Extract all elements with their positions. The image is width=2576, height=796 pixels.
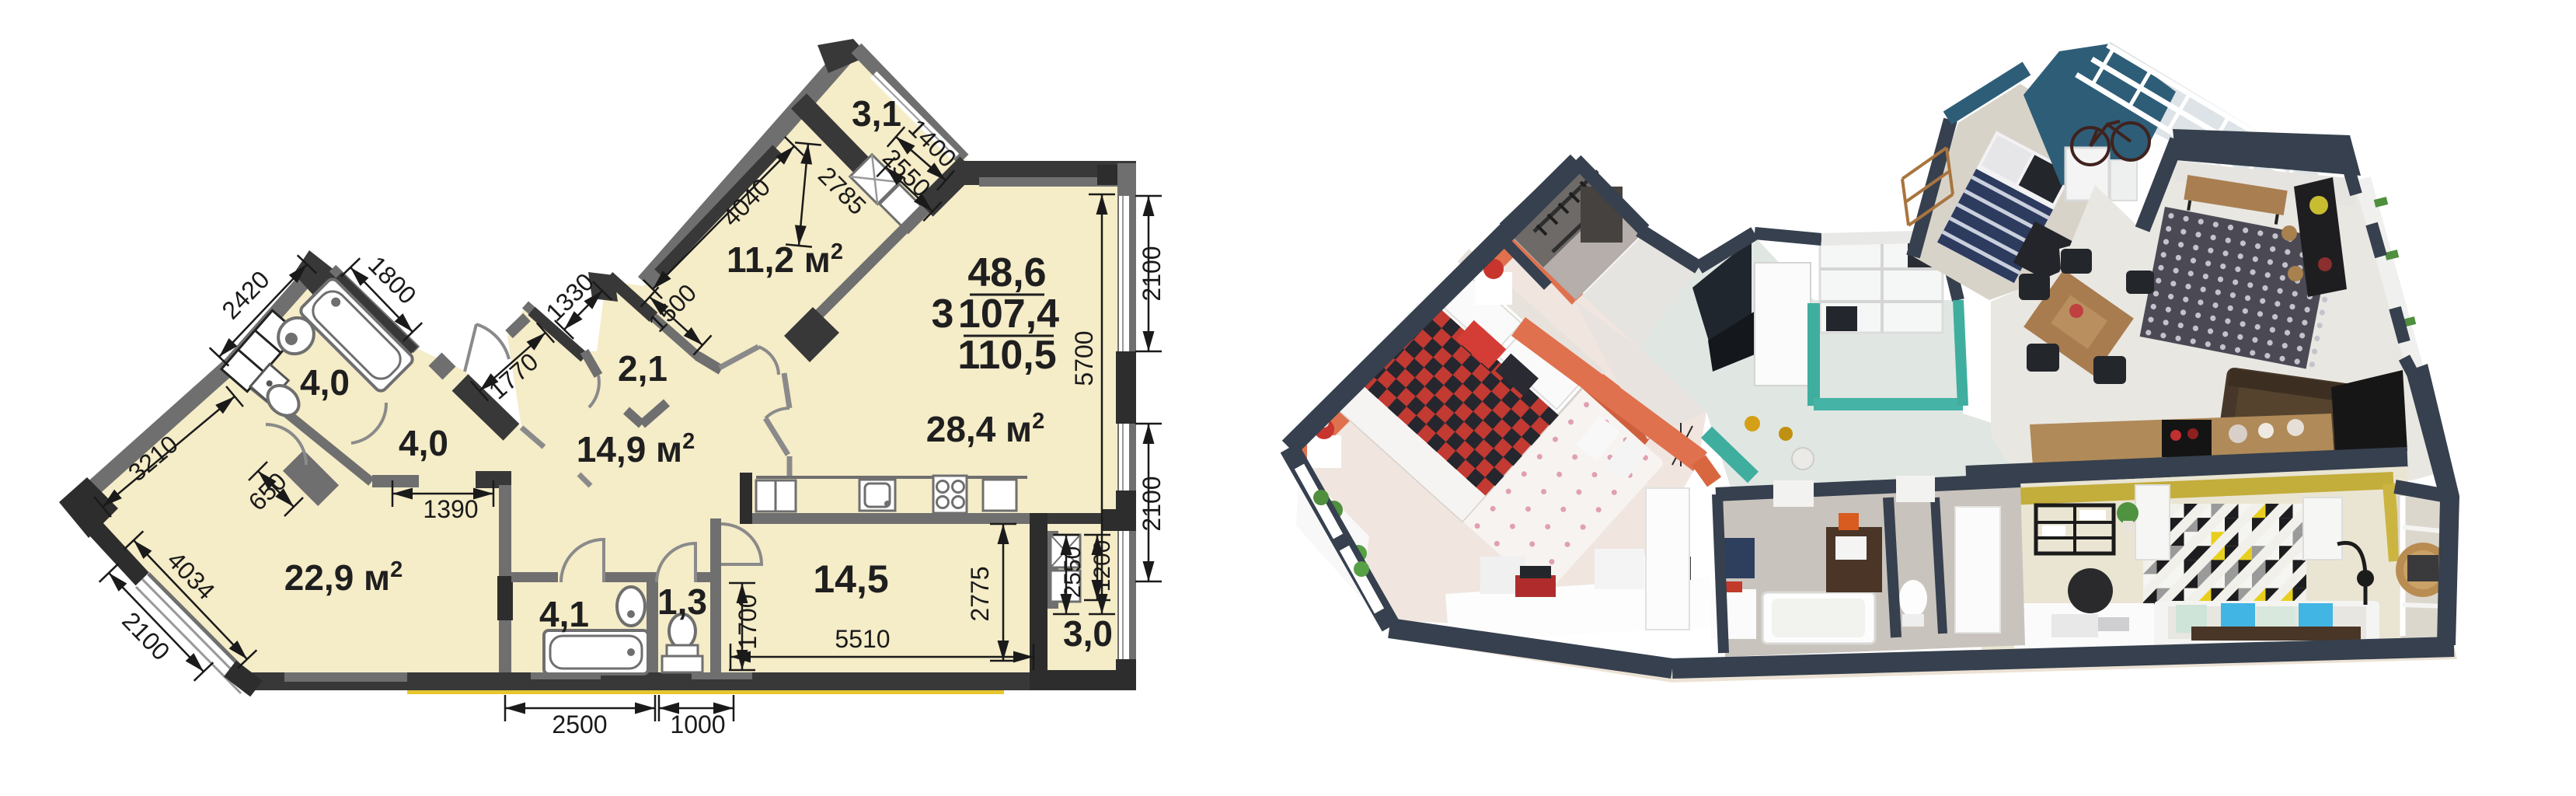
svg-text:3: 3 xyxy=(932,292,954,337)
svg-text:14,5: 14,5 xyxy=(813,557,888,601)
svg-text:14,9 м2: 14,9 м2 xyxy=(577,429,695,470)
svg-text:1390: 1390 xyxy=(423,495,478,523)
svg-text:11,2 м2: 11,2 м2 xyxy=(727,239,843,280)
svg-text:22,9 м2: 22,9 м2 xyxy=(284,557,403,598)
svg-text:28,4 м2: 28,4 м2 xyxy=(926,409,1044,449)
svg-text:110,5: 110,5 xyxy=(957,333,1056,378)
svg-text:2100: 2100 xyxy=(1138,476,1166,531)
svg-text:5510: 5510 xyxy=(835,625,890,653)
svg-text:2500: 2500 xyxy=(552,710,607,738)
svg-text:3,0: 3,0 xyxy=(1063,613,1113,654)
svg-text:2550: 2550 xyxy=(1060,546,1086,599)
svg-text:4,1: 4,1 xyxy=(539,594,589,634)
svg-text:1700: 1700 xyxy=(734,594,762,649)
svg-text:3,1: 3,1 xyxy=(852,93,901,134)
svg-text:2,1: 2,1 xyxy=(618,348,668,389)
svg-text:107,4: 107,4 xyxy=(958,292,1059,337)
svg-text:2100: 2100 xyxy=(1138,246,1166,301)
svg-text:4,0: 4,0 xyxy=(399,423,448,463)
svg-text:1000: 1000 xyxy=(670,710,725,738)
svg-text:4,0: 4,0 xyxy=(300,362,350,403)
svg-text:1,3: 1,3 xyxy=(657,581,707,622)
svg-text:1200: 1200 xyxy=(1089,540,1115,592)
svg-text:5700: 5700 xyxy=(1070,330,1098,386)
svg-text:2775: 2775 xyxy=(966,566,994,621)
svg-text:48,6: 48,6 xyxy=(967,250,1046,295)
